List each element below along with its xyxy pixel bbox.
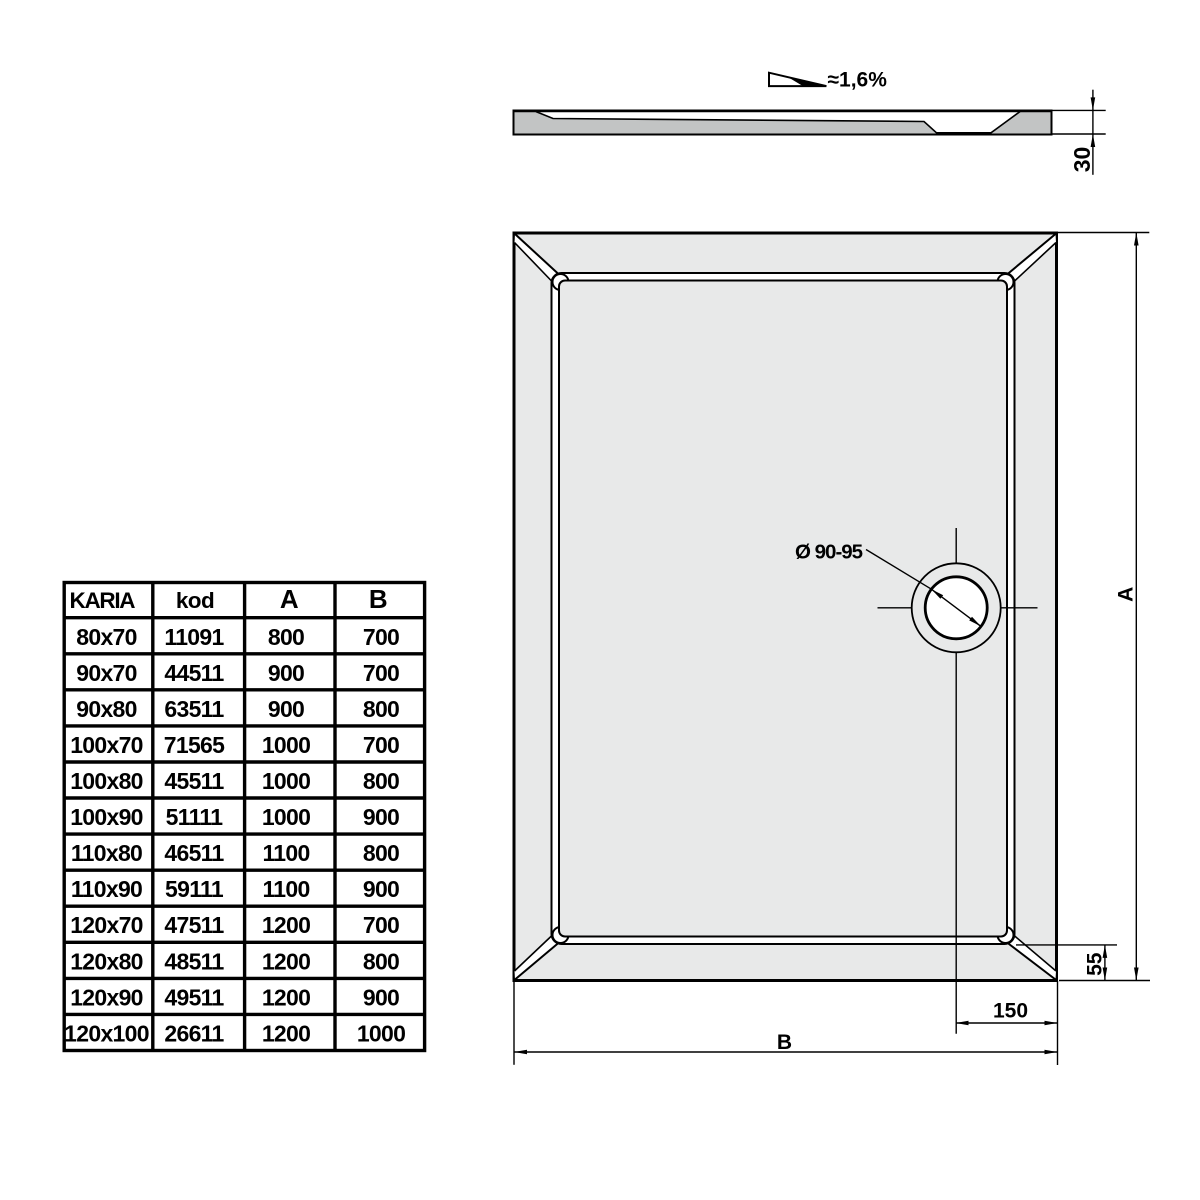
svg-text:800: 800	[363, 768, 399, 794]
svg-text:900: 900	[268, 660, 304, 686]
svg-text:1200: 1200	[262, 1021, 310, 1047]
svg-text:KARIA: KARIA	[70, 588, 136, 613]
svg-text:100x70: 100x70	[70, 732, 143, 758]
svg-text:11091: 11091	[164, 624, 224, 650]
svg-text:80x70: 80x70	[76, 624, 136, 650]
svg-text:900: 900	[363, 876, 399, 902]
svg-text:1000: 1000	[262, 768, 310, 794]
svg-text:120x80: 120x80	[70, 948, 143, 974]
svg-text:800: 800	[363, 948, 399, 974]
svg-text:kod: kod	[176, 588, 214, 613]
svg-text:120x100: 120x100	[64, 1021, 149, 1047]
svg-text:1200: 1200	[262, 912, 310, 938]
svg-text:800: 800	[363, 696, 399, 722]
svg-text:B: B	[369, 584, 387, 614]
svg-text:59111: 59111	[165, 876, 224, 902]
svg-text:45511: 45511	[164, 768, 224, 794]
svg-text:700: 700	[363, 732, 399, 758]
svg-text:900: 900	[363, 984, 399, 1010]
svg-text:120x70: 120x70	[70, 912, 143, 938]
svg-text:1000: 1000	[357, 1021, 405, 1047]
svg-text:55: 55	[1083, 952, 1106, 976]
svg-text:100x90: 100x90	[70, 804, 143, 830]
svg-text:47511: 47511	[164, 912, 224, 938]
svg-text:110x90: 110x90	[71, 876, 142, 902]
svg-text:700: 700	[363, 660, 399, 686]
svg-text:800: 800	[268, 624, 304, 650]
svg-text:90x80: 90x80	[76, 696, 136, 722]
svg-text:150: 150	[993, 1000, 1028, 1023]
svg-text:51111: 51111	[166, 804, 224, 830]
svg-text:B: B	[777, 1031, 792, 1054]
svg-text:700: 700	[363, 912, 399, 938]
svg-text:1000: 1000	[262, 732, 310, 758]
svg-text:100x80: 100x80	[70, 768, 143, 794]
svg-text:1100: 1100	[262, 876, 309, 902]
svg-text:1100: 1100	[262, 840, 309, 866]
svg-text:90x70: 90x70	[76, 660, 136, 686]
svg-text:900: 900	[363, 804, 399, 830]
svg-text:800: 800	[363, 840, 399, 866]
svg-text:1200: 1200	[262, 984, 310, 1010]
svg-text:700: 700	[363, 624, 399, 650]
svg-text:1200: 1200	[262, 948, 310, 974]
svg-text:1000: 1000	[262, 804, 310, 830]
svg-text:63511: 63511	[164, 696, 224, 722]
svg-text:110x80: 110x80	[71, 840, 142, 866]
svg-text:900: 900	[268, 696, 304, 722]
svg-text:120x90: 120x90	[70, 984, 143, 1010]
svg-text:Ø 90-95: Ø 90-95	[795, 541, 863, 564]
svg-text:46511: 46511	[164, 840, 224, 866]
svg-text:44511: 44511	[164, 660, 224, 686]
svg-text:49511: 49511	[164, 984, 224, 1010]
svg-text:A: A	[280, 584, 299, 614]
svg-text:30: 30	[1069, 147, 1095, 173]
svg-text:71565: 71565	[164, 732, 225, 758]
svg-text:48511: 48511	[164, 948, 224, 974]
svg-text:26611: 26611	[164, 1021, 224, 1047]
svg-text:A: A	[1115, 587, 1138, 602]
svg-text:≈1,6%: ≈1,6%	[828, 69, 888, 92]
